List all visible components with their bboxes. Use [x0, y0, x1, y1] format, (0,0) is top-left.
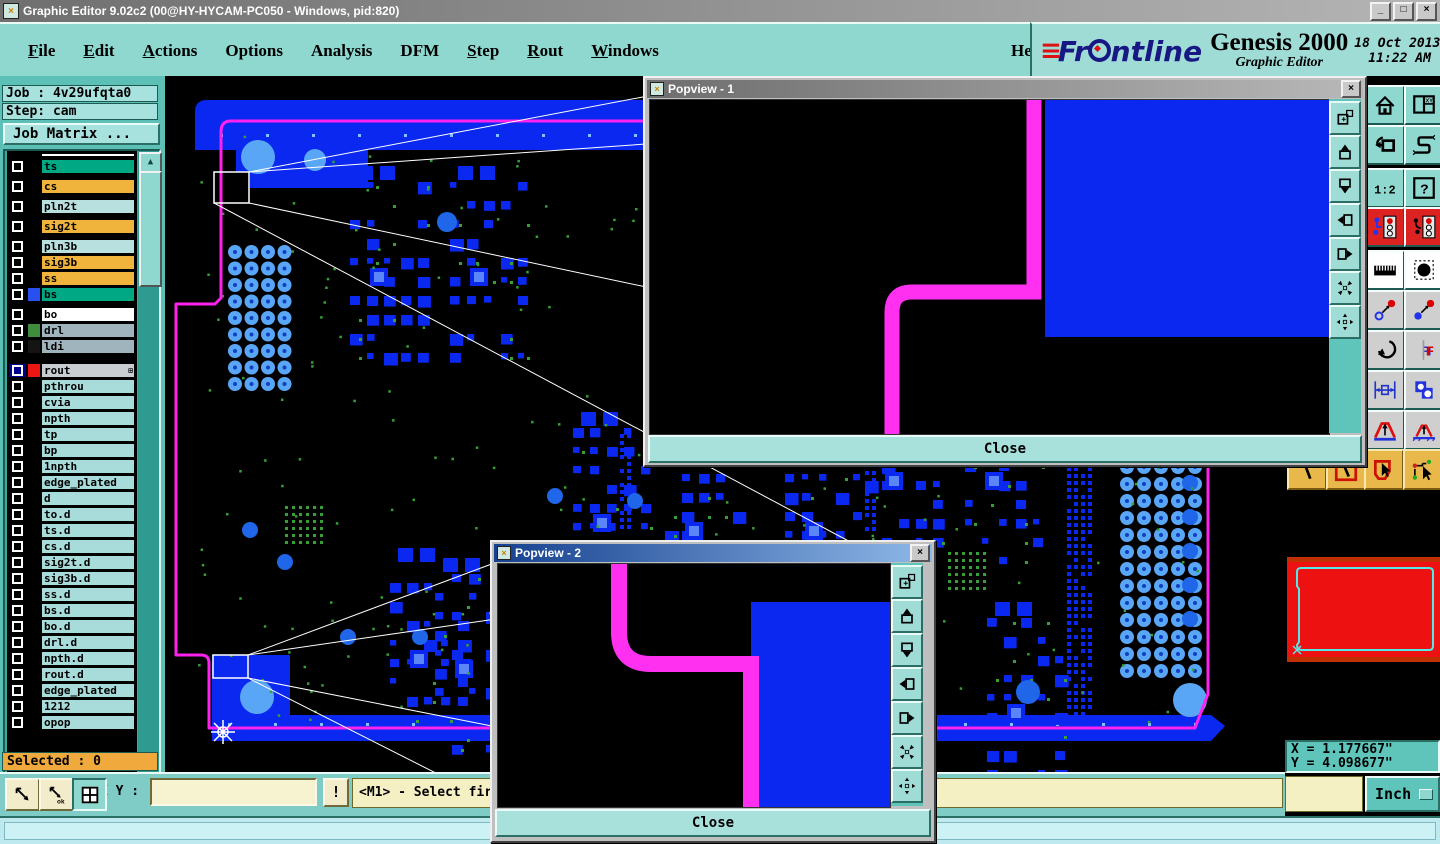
layer-checkbox[interactable]	[9, 412, 26, 425]
layer-name[interactable]: rout.d	[41, 667, 135, 682]
layer-color-swatch	[28, 380, 40, 393]
layer-color-swatch	[28, 200, 40, 213]
winnew-icon	[1335, 108, 1355, 128]
layer-checkbox[interactable]	[9, 256, 26, 269]
unit-value-box	[1285, 776, 1363, 812]
menu-items: FileEditActionsOptionsAnalysisDFMStepRou…	[0, 41, 659, 61]
layer-checkbox[interactable]	[9, 288, 26, 301]
maximize-button[interactable]: □	[1393, 2, 1414, 21]
origin-marker-icon	[211, 720, 235, 744]
popview-2-close-icon[interactable]: ×	[910, 544, 930, 562]
zoomfit-icon	[897, 742, 917, 762]
layer-checkbox[interactable]	[9, 272, 26, 285]
pandown-icon	[897, 640, 917, 660]
layer-row-opop[interactable]: opop	[7, 715, 137, 730]
app-icon: ×	[3, 3, 19, 19]
selfill-icon	[1411, 297, 1437, 323]
layer-checkbox[interactable]	[9, 380, 26, 393]
layer-checkbox[interactable]	[9, 716, 26, 729]
popview-1-close-icon[interactable]: ×	[1341, 80, 1361, 98]
pad-icon	[1411, 257, 1437, 283]
layer-checkbox[interactable]	[9, 492, 26, 505]
trafficb-icon	[1411, 214, 1437, 240]
layer-row-partial[interactable]	[7, 153, 137, 157]
layer-name[interactable]: ts	[41, 159, 135, 174]
xy-input[interactable]	[150, 778, 317, 806]
layer-name[interactable]: to.d	[41, 507, 135, 522]
svg-text:XY: XY	[1426, 98, 1434, 104]
layer-row-cvia[interactable]: cvia	[7, 395, 137, 410]
menu-actions[interactable]: Actions	[143, 41, 198, 61]
layer-row-ts[interactable]: ts	[7, 159, 137, 174]
layer-name[interactable]: drl.d	[41, 635, 135, 650]
dropdown-handle-icon	[1419, 789, 1433, 800]
zoom-fit-button[interactable]	[1329, 271, 1361, 305]
pandown-icon	[1335, 176, 1355, 196]
layer-checkbox[interactable]	[9, 620, 26, 633]
layer-row-bs[interactable]: bs	[7, 287, 137, 302]
layer-color-swatch	[28, 160, 40, 173]
pan-left-button[interactable]	[891, 667, 923, 701]
selopen-icon	[1372, 297, 1398, 323]
layer-color-swatch	[28, 652, 40, 665]
serpentine-button[interactable]	[1404, 125, 1440, 165]
window-xy-button[interactable]: XY	[1404, 85, 1440, 125]
layer-name[interactable]: ts.d	[41, 523, 135, 538]
layer-row-bs.d[interactable]: bs.d	[7, 603, 137, 618]
layer-checkbox[interactable]	[9, 524, 26, 537]
zoom-fit-button[interactable]	[891, 735, 923, 769]
layer-name[interactable]: drl	[41, 323, 135, 338]
layer-row-npth.d[interactable]: npth.d	[7, 651, 137, 666]
menu-windows[interactable]: Windows	[591, 41, 659, 61]
layer-name[interactable]: bo	[41, 307, 135, 322]
layer-name[interactable]: edge_plated	[41, 683, 135, 698]
pan-down-button[interactable]	[1329, 169, 1361, 203]
layer-color-swatch	[28, 324, 40, 337]
winxy-icon: XY	[1411, 92, 1437, 118]
layer-checkbox[interactable]	[9, 308, 26, 321]
layer-list-panel: tscspln2tsig2tpln3bsig3bssbsbodrlldirout…	[3, 149, 161, 823]
layer-name[interactable]: npth	[41, 411, 135, 426]
cursor-coordinates: X = 1.177667" Y = 4.098677"	[1285, 740, 1440, 773]
popview-1-title: Popview - 1	[668, 82, 734, 96]
popview-1-window[interactable]: × Popview - 1 × Close	[643, 76, 1367, 467]
mirror-button[interactable]: FF	[1404, 330, 1440, 370]
help2-icon: ?	[1411, 175, 1437, 201]
layer-color-swatch	[28, 572, 40, 585]
layer-color-swatch	[28, 340, 40, 353]
pan-right-button[interactable]	[891, 701, 923, 735]
dimension-button[interactable]	[1365, 370, 1405, 410]
zoom-center-button[interactable]	[891, 769, 923, 803]
zoomfit-icon	[1335, 278, 1355, 298]
layer-row-rout[interactable]: rout⊞	[7, 363, 137, 378]
layer-color-swatch	[28, 716, 40, 729]
layer-scrollbar[interactable]: ▲ ▽	[138, 151, 159, 821]
layer-color-swatch	[28, 588, 40, 601]
dim-icon	[1372, 377, 1398, 403]
layer-checkbox[interactable]	[9, 444, 26, 457]
polycursor-icon	[1371, 457, 1397, 483]
layer-name[interactable]: npth.d	[41, 651, 135, 666]
layer-color-swatch	[28, 272, 40, 285]
diag-icon	[12, 784, 34, 806]
svg-text:ok: ok	[57, 798, 65, 805]
layer-checkbox[interactable]	[9, 700, 26, 713]
scale-1-2-button[interactable]: 1:2	[1365, 168, 1405, 208]
panleft-icon	[897, 674, 917, 694]
rotate-icon	[1372, 337, 1398, 363]
popview-2-window[interactable]: × Popview - 2 × Close	[490, 540, 936, 843]
layer-name[interactable]: rout⊞	[41, 363, 135, 378]
layer-row-to.d[interactable]: to.d	[7, 507, 137, 522]
svg-text:1:2: 1:2	[1374, 183, 1395, 197]
layer-name[interactable]: sig3b	[41, 255, 135, 270]
layer-signal-button[interactable]	[1365, 207, 1405, 247]
layer-name[interactable]: pln3b	[41, 239, 135, 254]
layer-checkbox[interactable]	[9, 636, 26, 649]
layer-name[interactable]: 1npth	[41, 459, 135, 474]
layer-name[interactable]: bo.d	[41, 619, 135, 634]
layer-checkbox[interactable]	[9, 460, 26, 473]
layer-row-sig3b.d[interactable]: sig3b.d	[7, 571, 137, 586]
popview-2-title: Popview - 2	[515, 546, 581, 560]
zoomctr-icon	[897, 776, 917, 796]
diagok-icon: ok	[46, 784, 68, 806]
menu-dfm[interactable]: DFM	[400, 41, 439, 61]
layer-row-edge_plated[interactable]: edge_plated	[7, 475, 137, 490]
layer-checkbox[interactable]	[9, 556, 26, 569]
layer-checkbox[interactable]	[9, 508, 26, 521]
undo-icon	[1372, 132, 1398, 158]
frontline-logo: ≡ Frntline	[1040, 35, 1202, 68]
layer-signal-alt-button[interactable]	[1404, 207, 1440, 247]
layer-color-swatch	[28, 492, 40, 505]
winnew-icon	[897, 572, 917, 592]
angle-arrow-button[interactable]	[1365, 410, 1405, 450]
spath-icon	[1411, 132, 1437, 158]
measure-button[interactable]	[1365, 250, 1405, 290]
layer-name[interactable]: ss.d	[41, 587, 135, 602]
product-subtitle: Graphic Editor	[1210, 55, 1348, 71]
quadrant-grid-button[interactable]	[72, 778, 107, 811]
layer-row-bo[interactable]: bo	[7, 307, 137, 322]
layer-name[interactable]: edge_plated	[41, 475, 135, 490]
layer-name[interactable]: sig2t	[41, 219, 135, 234]
shapes-icon	[1411, 377, 1437, 403]
layer-row-tp[interactable]: tp	[7, 427, 137, 442]
layer-name[interactable]: ldi	[41, 339, 135, 354]
layer-color-swatch	[28, 540, 40, 553]
pan-up-button[interactable]	[1329, 135, 1361, 169]
layer-row-bo.d[interactable]: bo.d	[7, 619, 137, 634]
layer-checkbox[interactable]	[9, 588, 26, 601]
layer-color-swatch	[28, 684, 40, 697]
layer-row-drl[interactable]: drl	[7, 323, 137, 338]
layer-row-ss[interactable]: ss	[7, 271, 137, 286]
layer-checkbox[interactable]	[9, 396, 26, 409]
minimize-button[interactable]: _	[1370, 2, 1391, 21]
ratio12-icon: 1:2	[1372, 175, 1398, 201]
popout-window-button[interactable]	[1329, 101, 1361, 135]
layer-color-swatch	[28, 364, 40, 377]
layer-row-cs.d[interactable]: cs.d	[7, 539, 137, 554]
layer-list: tscspln2tsig2tpln3bsig3bssbsbodrlldirout…	[7, 151, 137, 819]
job-matrix-button[interactable]: Job Matrix ...	[3, 123, 160, 145]
pan-down-button[interactable]	[891, 633, 923, 667]
svg-text:?: ?	[1420, 182, 1428, 198]
popview-1-canvas[interactable]	[649, 99, 1330, 435]
popview-1-titlebar[interactable]: × Popview - 1 ×	[647, 80, 1363, 98]
pad-select-button[interactable]	[1404, 250, 1440, 290]
layer-color-swatch	[28, 620, 40, 633]
pan-up-button[interactable]	[891, 599, 923, 633]
layer-checkbox[interactable]	[9, 652, 26, 665]
query-button[interactable]: ?	[1404, 168, 1440, 208]
layer-name[interactable]: opop	[41, 715, 135, 730]
layer-color-swatch	[28, 700, 40, 713]
layer-name[interactable]: 1212	[41, 699, 135, 714]
alert-button[interactable]: !	[323, 778, 349, 807]
pan-left-button[interactable]	[1329, 203, 1361, 237]
board-overview[interactable]	[1285, 490, 1440, 738]
layer-checkbox[interactable]	[9, 240, 26, 253]
layer-row-sig2t.d[interactable]: sig2t.d	[7, 555, 137, 570]
menu-edit[interactable]: Edit	[83, 41, 114, 61]
popview-icon: ×	[497, 546, 511, 560]
layer-row-npth[interactable]: npth	[7, 411, 137, 426]
layer-color-swatch	[28, 396, 40, 409]
layer-row-sig2t[interactable]: sig2t	[7, 219, 137, 234]
layer-name[interactable]: tp	[41, 427, 135, 442]
layer-color-swatch	[28, 256, 40, 269]
layer-color-swatch	[28, 308, 40, 321]
pan-right-button[interactable]	[1329, 237, 1361, 271]
zoom-center-button[interactable]	[1329, 305, 1361, 339]
layer-color-swatch	[28, 476, 40, 489]
layer-row-drl.d[interactable]: drl.d	[7, 635, 137, 650]
layer-checkbox[interactable]	[9, 572, 26, 585]
layer-name[interactable]: ss	[41, 271, 135, 286]
menu-rout[interactable]: Rout	[527, 41, 563, 61]
polygon-select-mode-button[interactable]	[1364, 449, 1404, 490]
layer-color-swatch	[28, 288, 40, 301]
layer-row-bp[interactable]: bp	[7, 443, 137, 458]
shapes-button[interactable]	[1404, 370, 1440, 410]
layer-color-swatch	[28, 428, 40, 441]
panright-icon	[897, 708, 917, 728]
select-open-button[interactable]	[1365, 290, 1405, 330]
layer-color-swatch	[28, 604, 40, 617]
layer-color-swatch	[28, 508, 40, 521]
layer-color-swatch	[28, 556, 40, 569]
popview-1-close-button[interactable]: Close	[648, 435, 1362, 463]
menu-options[interactable]: Options	[225, 41, 283, 61]
popview-2-titlebar[interactable]: × Popview - 2 ×	[494, 544, 932, 562]
brand-panel: ≡ Frntline Genesis 2000 Graphic Editor 1…	[1030, 22, 1440, 80]
frontline-target-icon	[1088, 39, 1111, 62]
layer-name[interactable]: bs	[41, 287, 135, 302]
layer-checkbox[interactable]	[9, 668, 26, 681]
graphic-editor-app: { "window": { "title": "Graphic Editor 9…	[0, 0, 1440, 844]
measure-ok-button[interactable]: ok	[39, 778, 74, 811]
layer-name[interactable]: sig3b.d	[41, 571, 135, 586]
product-title: Genesis 2000	[1210, 31, 1348, 55]
layer-row-1212[interactable]: 1212	[7, 699, 137, 714]
panleft-icon	[1335, 210, 1355, 230]
layer-row-1npth[interactable]: 1npth	[7, 459, 137, 474]
mirror-icon: FF	[1411, 337, 1437, 363]
layer-row-pln2t[interactable]: pln2t	[7, 199, 137, 214]
layer-grid-icon: ⊞	[128, 367, 133, 375]
layer-name[interactable]: bs.d	[41, 603, 135, 618]
zoomctr-icon	[1335, 312, 1355, 332]
net-select-mode-button[interactable]	[1403, 449, 1440, 490]
layer-checkbox[interactable]	[9, 540, 26, 553]
layer-name[interactable]: cvia	[41, 395, 135, 410]
traffica-icon	[1372, 214, 1398, 240]
close-button[interactable]: ×	[1416, 2, 1437, 21]
undo-view-button[interactable]	[1365, 125, 1405, 165]
layer-color-swatch	[28, 444, 40, 457]
layer-color-swatch	[28, 220, 40, 233]
layer-checkbox[interactable]	[9, 220, 26, 233]
quad-icon	[79, 784, 101, 806]
layer-checkbox[interactable]	[9, 604, 26, 617]
units-dropdown[interactable]: Inch	[1365, 776, 1440, 812]
layer-name[interactable]: sig2t.d	[41, 555, 135, 570]
panright-icon	[1335, 244, 1355, 264]
popview-2-canvas[interactable]	[497, 563, 891, 808]
ruler-icon	[1372, 257, 1398, 283]
layer-checkbox[interactable]	[9, 200, 26, 213]
layer-row-ss.d[interactable]: ss.d	[7, 587, 137, 602]
layer-name[interactable]: cs	[41, 179, 135, 194]
layer-row-rout.d[interactable]: rout.d	[7, 667, 137, 682]
popout-window-button[interactable]	[891, 565, 923, 599]
step-label: Step: cam	[2, 103, 158, 120]
menu-step[interactable]: Step	[467, 41, 499, 61]
layer-checkbox[interactable]	[9, 340, 26, 353]
layer-name[interactable]: bp	[41, 443, 135, 458]
layer-row-cs[interactable]: cs	[7, 179, 137, 194]
home-button[interactable]	[1365, 85, 1405, 125]
datetime: 18 Oct 201311:22 AM	[1354, 36, 1440, 66]
layer-checkbox[interactable]	[9, 364, 26, 377]
layer-name[interactable]: pln2t	[41, 199, 135, 214]
netcursor-icon	[1410, 457, 1436, 483]
menu-file[interactable]: File	[28, 41, 55, 61]
layer-row-d[interactable]: d	[7, 491, 137, 506]
aup2-icon	[1411, 417, 1437, 443]
select-filled-button[interactable]	[1404, 290, 1440, 330]
menu-analysis[interactable]: Analysis	[311, 41, 372, 61]
layer-name[interactable]: cs.d	[41, 539, 135, 554]
window-title: Graphic Editor 9.02c2 (00@HY-HYCAM-PC050…	[23, 4, 399, 18]
popview-2-close-button[interactable]: Close	[495, 809, 931, 837]
layer-row-edge_plated[interactable]: edge_plated	[7, 683, 137, 698]
angle-arrow-alt-button[interactable]	[1404, 410, 1440, 450]
layer-row-ts.d[interactable]: ts.d	[7, 523, 137, 538]
panup-icon	[1335, 142, 1355, 162]
popview-icon: ×	[650, 82, 664, 96]
rotate-button[interactable]	[1365, 330, 1405, 370]
layer-color-swatch	[28, 240, 40, 253]
layer-color-swatch	[28, 636, 40, 649]
layer-name[interactable]: pthrou	[41, 379, 135, 394]
aup1-icon	[1372, 417, 1398, 443]
popview-1-toolbar	[1329, 99, 1361, 433]
layer-checkbox[interactable]	[9, 684, 26, 697]
svg-text:F: F	[1426, 344, 1434, 360]
layer-color-swatch	[28, 460, 40, 473]
popview-2-toolbar	[891, 563, 923, 806]
layer-row-pthrou[interactable]: pthrou	[7, 379, 137, 394]
layer-checkbox[interactable]	[9, 428, 26, 441]
layer-checkbox[interactable]	[9, 160, 26, 173]
window-titlebar[interactable]: × Graphic Editor 9.02c2 (00@HY-HYCAM-PC0…	[0, 0, 1440, 23]
home-icon	[1372, 92, 1398, 118]
layer-checkbox[interactable]	[9, 324, 26, 337]
measure-diagonal-button[interactable]	[5, 778, 40, 811]
layer-row-sig3b[interactable]: sig3b	[7, 255, 137, 270]
selected-count: Selected : 0	[2, 752, 158, 771]
layer-row-ldi[interactable]: ldi	[7, 339, 137, 354]
job-label: Job : 4v29ufqta0	[2, 85, 158, 102]
layer-color-swatch	[28, 668, 40, 681]
layer-name[interactable]: d	[41, 491, 135, 506]
layer-checkbox[interactable]	[9, 476, 26, 489]
layer-color-swatch	[28, 412, 40, 425]
layer-color-swatch	[28, 524, 40, 537]
layer-row-pln3b[interactable]: pln3b	[7, 239, 137, 254]
scroll-thumb[interactable]	[139, 171, 162, 287]
layer-color-swatch	[28, 180, 40, 193]
layer-checkbox[interactable]	[9, 180, 26, 193]
left-sidebar: Job : 4v29ufqta0 Step: cam Job Matrix ..…	[0, 76, 165, 844]
panup-icon	[897, 606, 917, 626]
